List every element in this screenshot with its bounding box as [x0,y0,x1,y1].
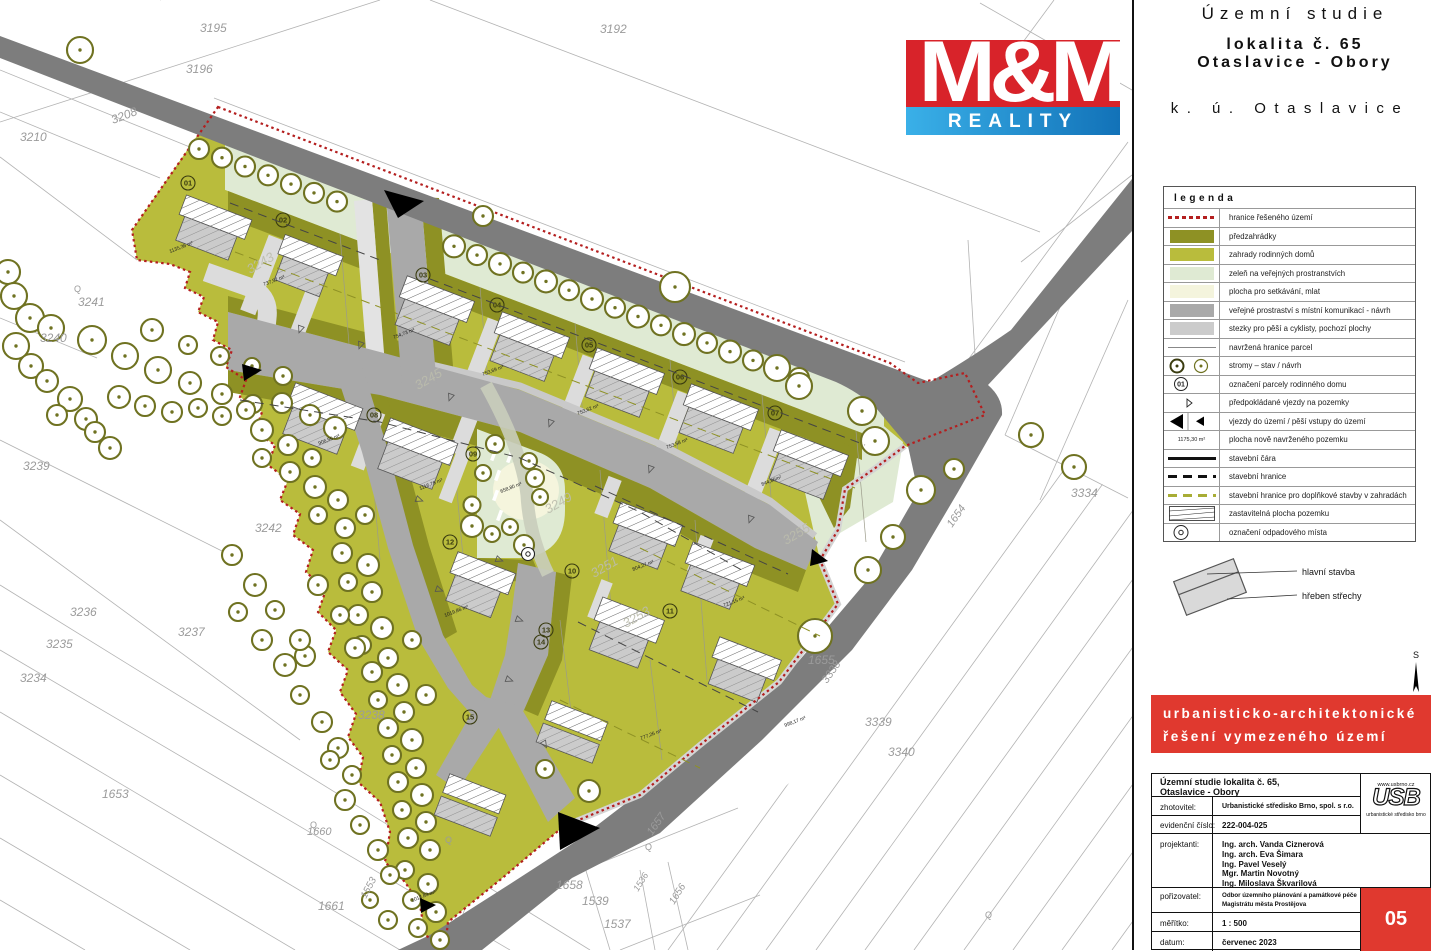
svg-text:02: 02 [279,216,287,225]
svg-text:04: 04 [493,301,502,310]
svg-text:05: 05 [585,341,593,350]
svg-text:3196: 3196 [186,62,213,76]
svg-text:09: 09 [469,450,477,459]
svg-text:3238: 3238 [358,708,385,722]
svg-text:3208: 3208 [109,104,139,127]
svg-text:Q: Q [645,842,652,852]
svg-text:01: 01 [184,179,192,188]
svg-text:3241: 3241 [78,295,105,309]
svg-text:3234: 3234 [20,671,47,685]
svg-text:14: 14 [537,638,546,647]
svg-text:08: 08 [370,411,378,420]
svg-text:1655: 1655 [808,653,835,667]
svg-text:3240: 3240 [40,331,67,345]
svg-text:01: 01 [1177,382,1185,389]
svg-text:1658: 1658 [556,878,583,892]
svg-text:3340: 3340 [888,745,915,759]
svg-text:1539: 1539 [582,894,609,908]
svg-text:06: 06 [676,373,684,382]
svg-text:3334: 3334 [1071,486,1098,500]
svg-text:3239: 3239 [23,459,50,473]
svg-text:3339: 3339 [865,715,892,729]
svg-text:3242: 3242 [255,521,282,535]
svg-text:1660: 1660 [307,826,332,838]
svg-text:3210: 3210 [20,130,47,144]
svg-text:1661: 1661 [318,899,345,913]
svg-text:13: 13 [542,626,550,635]
svg-text:12: 12 [446,538,454,547]
svg-text:1536: 1536 [631,871,650,893]
svg-text:S: S [1413,650,1419,660]
svg-text:3195: 3195 [200,21,227,35]
svg-text:hřeben střechy: hřeben střechy [1302,591,1362,601]
svg-text:Q: Q [985,910,992,920]
svg-text:3235: 3235 [46,637,73,651]
svg-text:1656: 1656 [667,882,688,907]
svg-text:11: 11 [666,607,674,616]
svg-text:Q: Q [445,835,452,845]
svg-text:hlavní stavba: hlavní stavba [1302,567,1355,577]
svg-text:3192: 3192 [600,22,627,36]
svg-text:1537: 1537 [604,917,632,931]
svg-text:1653: 1653 [102,787,129,801]
svg-text:15: 15 [466,713,474,722]
svg-text:3237: 3237 [178,625,206,639]
svg-text:3236: 3236 [70,605,97,619]
svg-text:10: 10 [568,567,576,576]
svg-text:Q: Q [74,284,81,294]
svg-text:998,17 m²: 998,17 m² [784,715,807,729]
svg-text:03: 03 [419,271,427,280]
